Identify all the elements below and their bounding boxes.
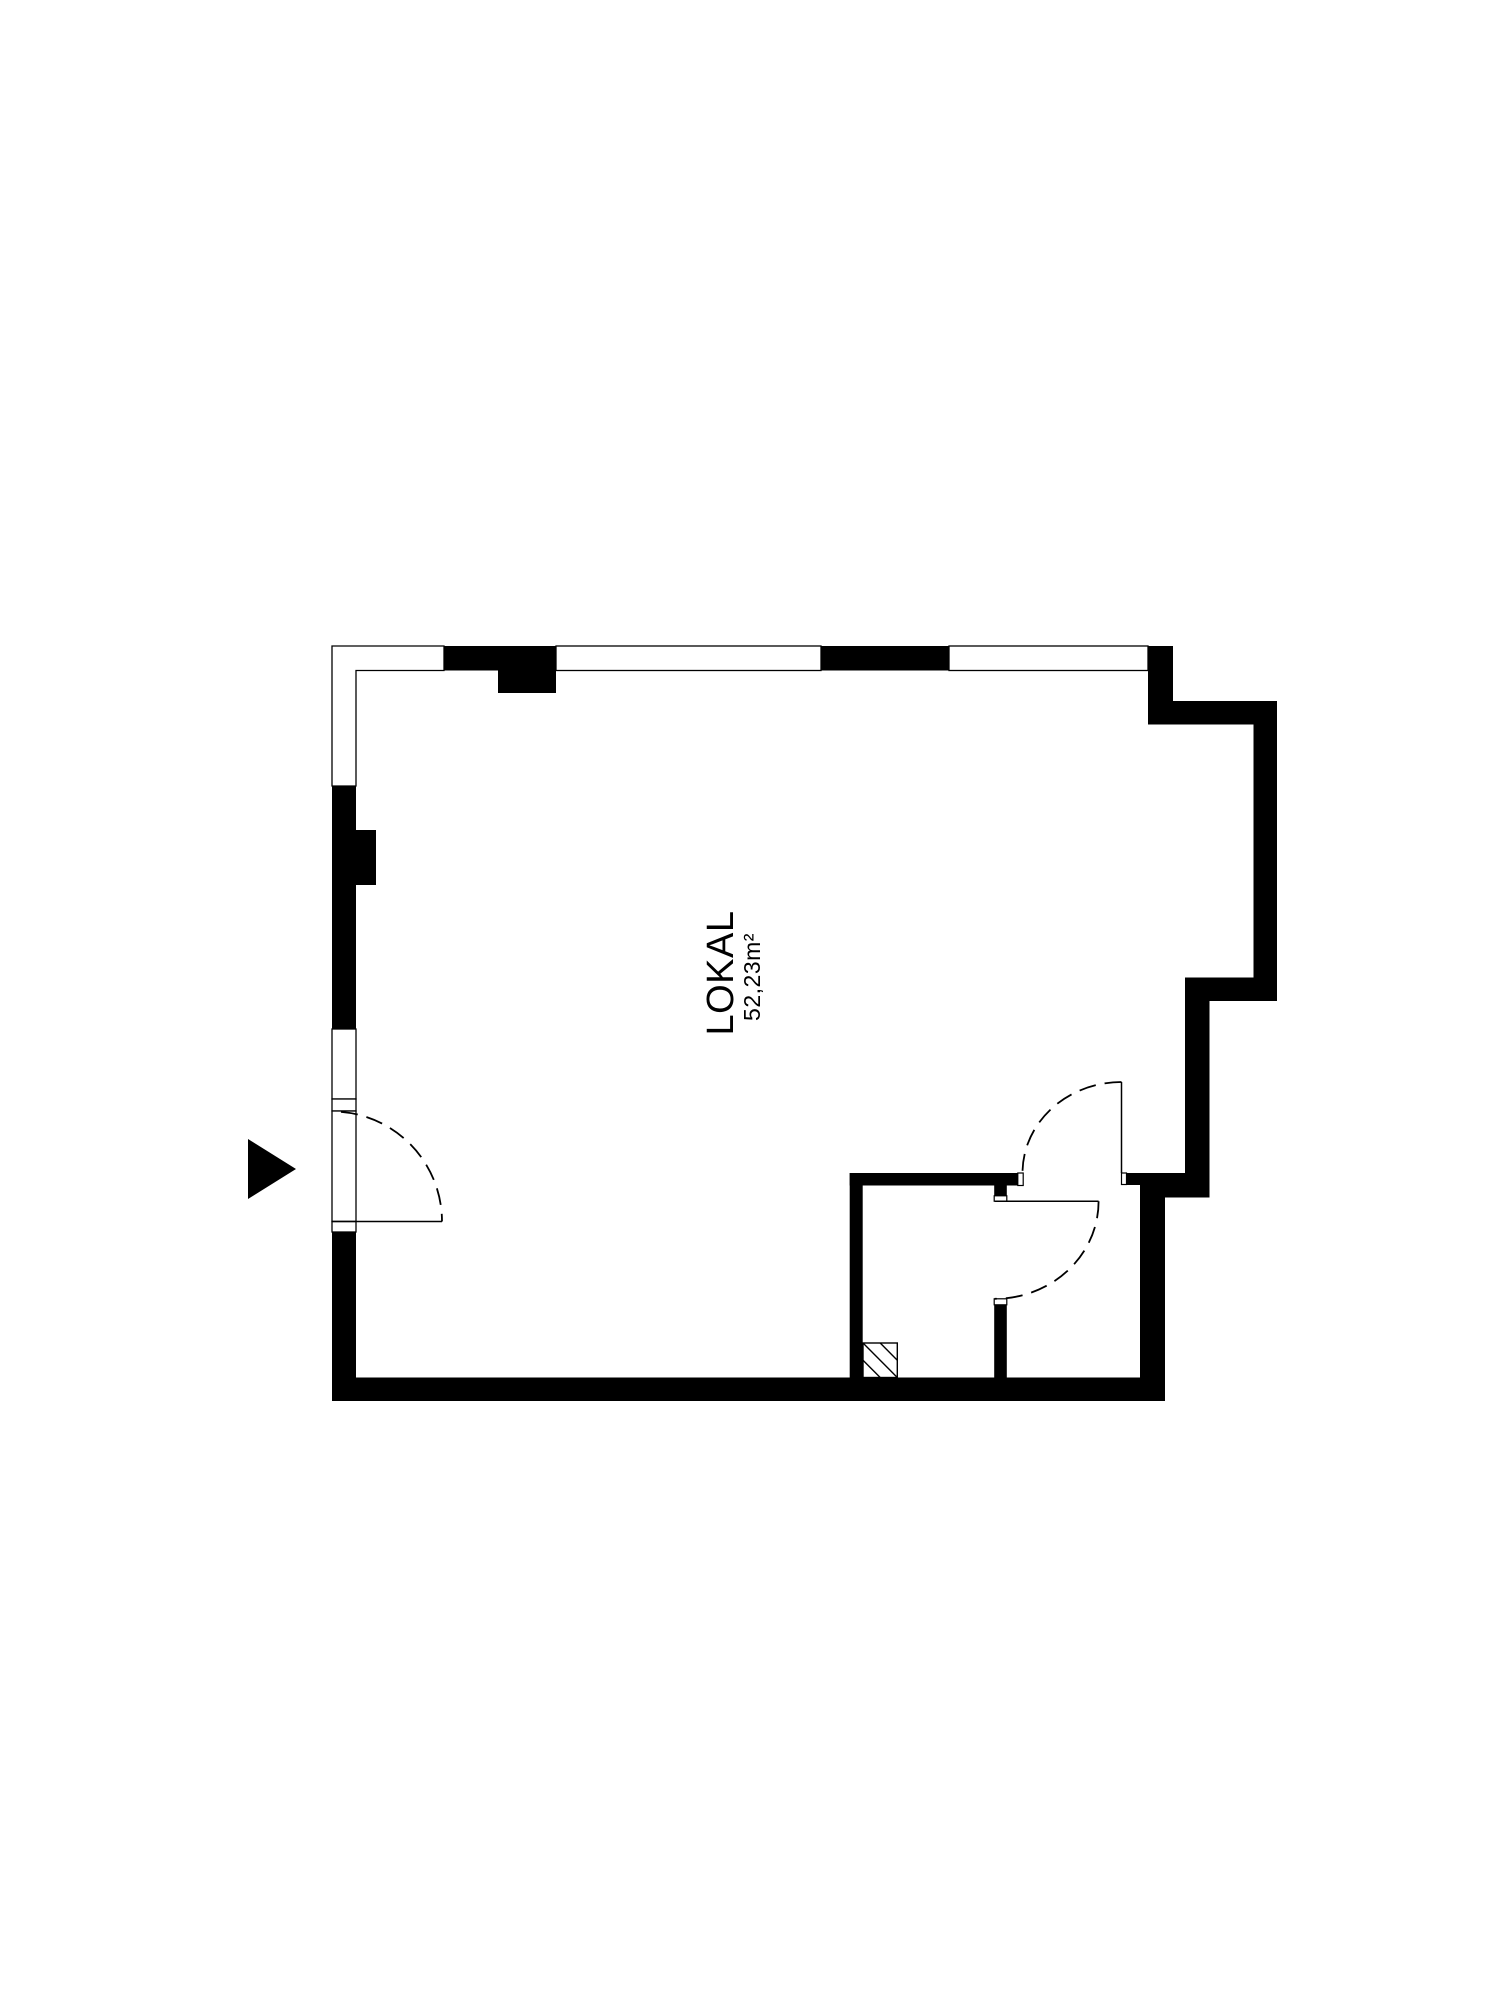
svg-text:LOKAL: LOKAL (700, 910, 742, 1035)
svg-text:52,23m²: 52,23m² (739, 933, 765, 1021)
